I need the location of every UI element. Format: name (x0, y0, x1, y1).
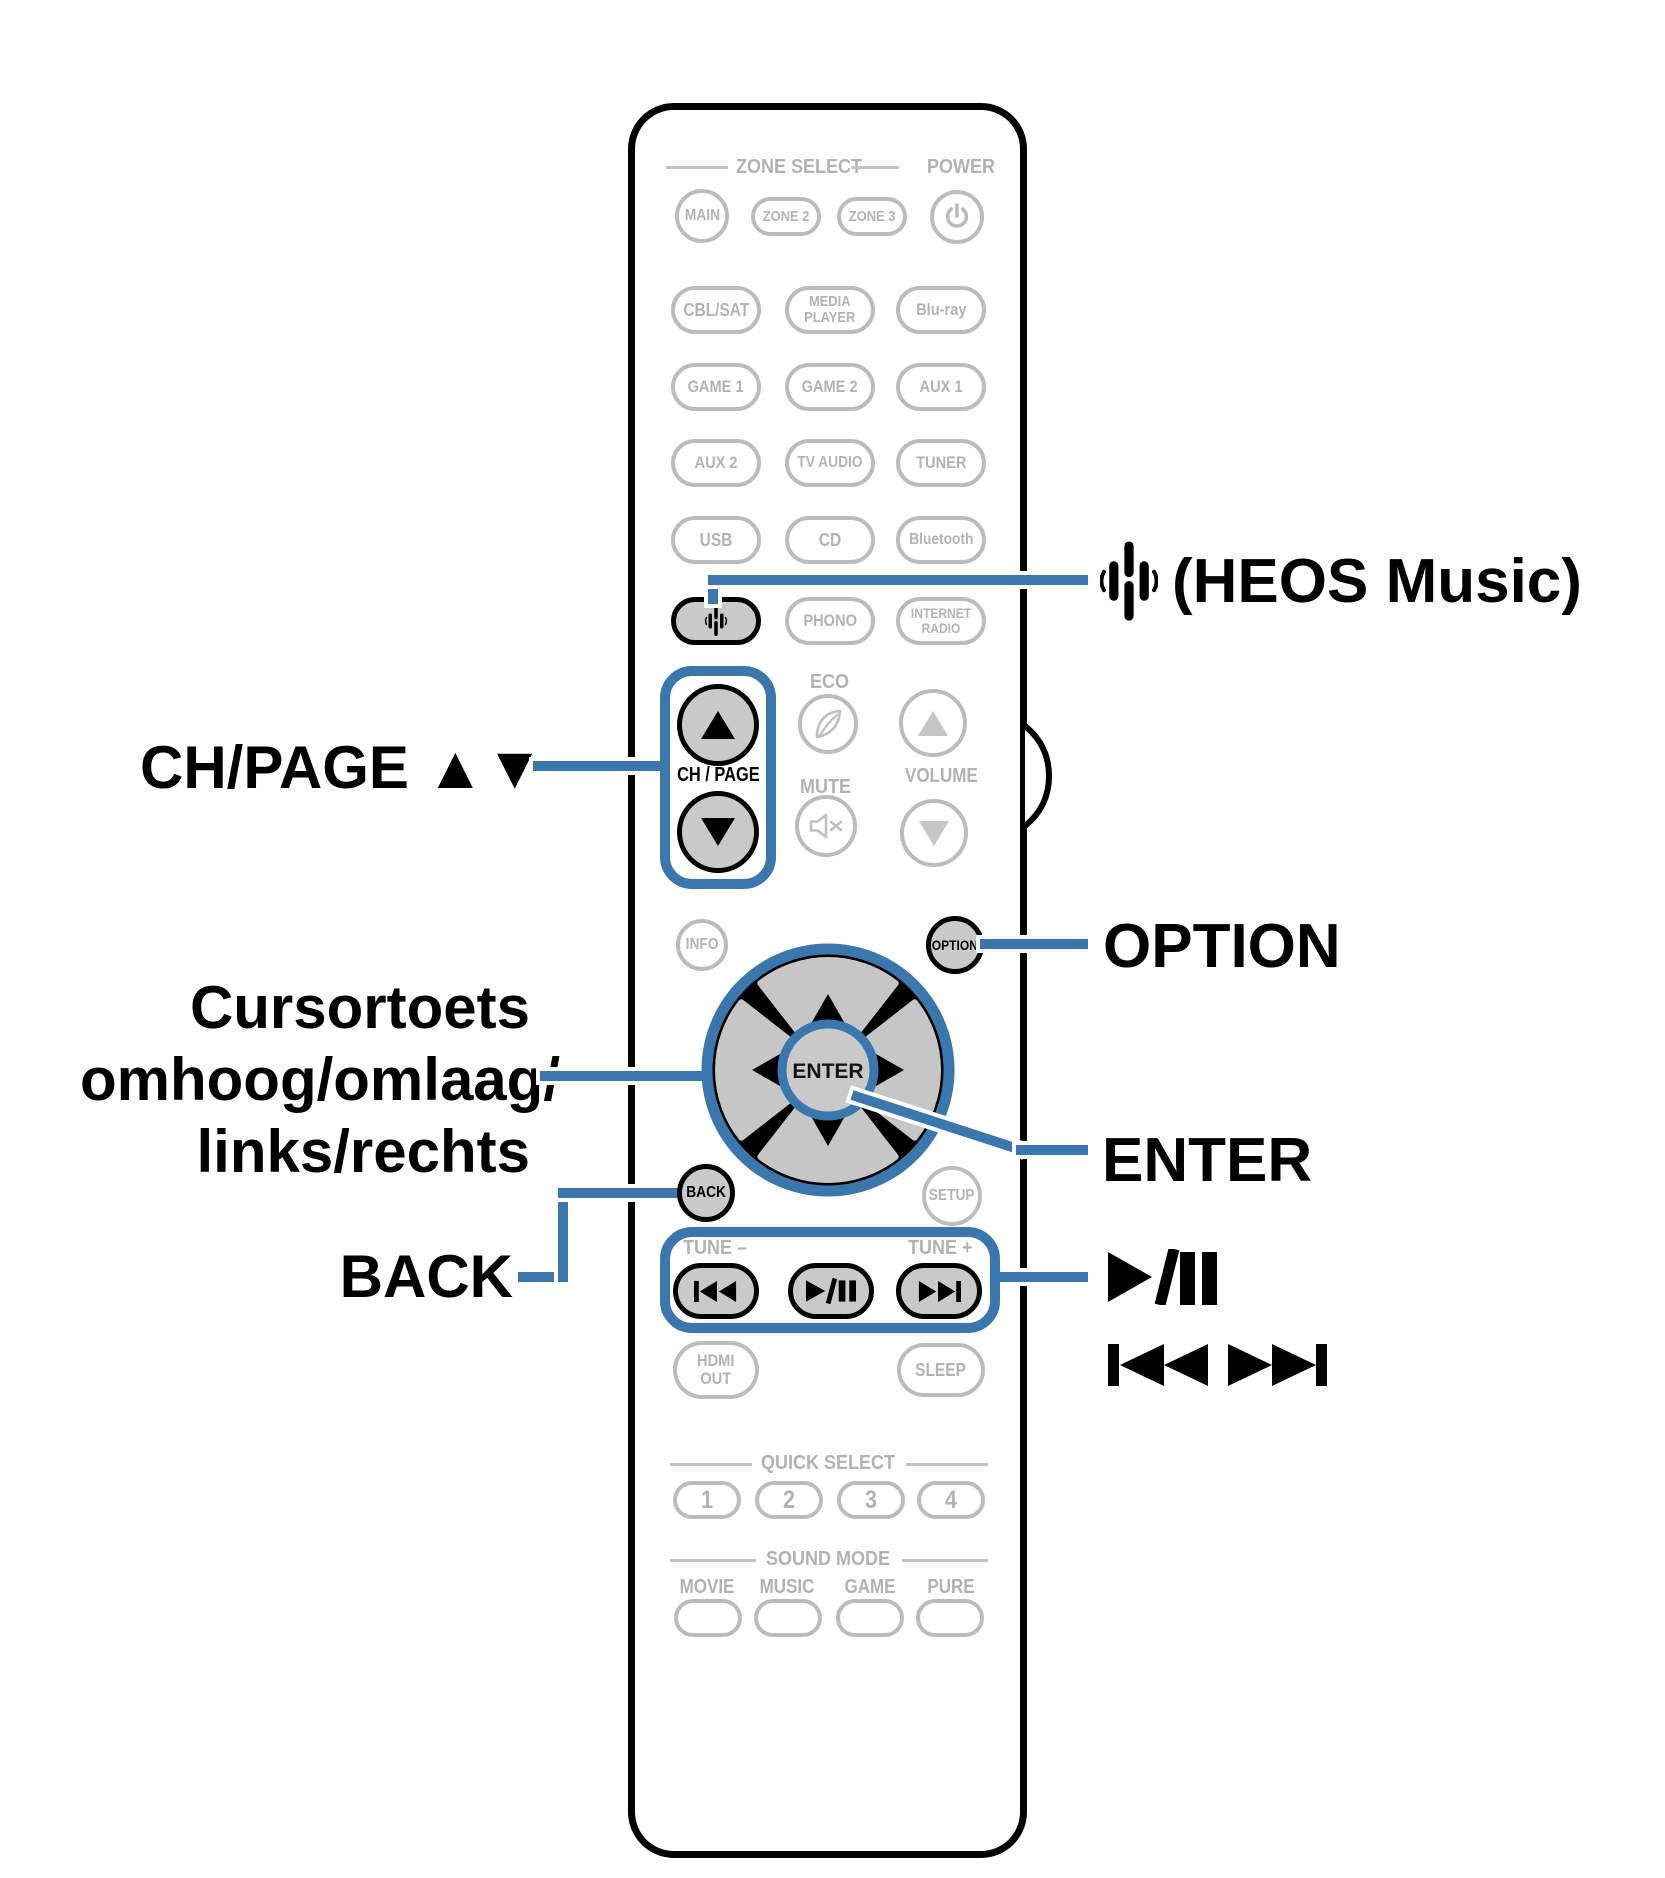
cursor-callout-label: Cursortoets omhoog/omlaag/ links/rechts (80, 972, 530, 1188)
game1-button[interactable]: GAME 1 (671, 363, 761, 411)
cbl-sat-button[interactable]: CBL/SAT (671, 286, 761, 334)
cursor-label-line2: omhoog/omlaag/ (80, 1044, 530, 1116)
quick-select-header: QUICK SELECT (761, 1452, 895, 1475)
heos-icon (695, 606, 737, 636)
hdmi-out-button[interactable]: HDMIOUT (673, 1341, 759, 1399)
zone-select-dash-right (851, 166, 899, 169)
game-label: GAME (845, 1576, 896, 1599)
pure-label: PURE (927, 1576, 974, 1599)
sound-mode-dash-right (902, 1559, 988, 1562)
ch-page-highlight-box (660, 666, 776, 889)
quick-select-2-button[interactable]: 2 (755, 1481, 823, 1519)
manual-diagram-page: ZONE SELECT POWER MAIN ZONE 2 ZONE 3 CBL… (0, 0, 1665, 1878)
phono-button[interactable]: PHONO (785, 597, 875, 645)
internet-radio-button[interactable]: INTERNETRADIO (896, 597, 986, 645)
cd-button[interactable]: CD (785, 516, 875, 564)
sound-mode-dash-left (670, 1559, 756, 1562)
cursor-label-line3: links/rechts (80, 1116, 530, 1188)
sound-mode-game-button[interactable] (836, 1599, 904, 1637)
enter-callout-line (1016, 1145, 1088, 1155)
cursor-pad: ENTER (696, 938, 960, 1202)
bluetooth-button[interactable]: Bluetooth (896, 516, 986, 564)
back-button[interactable]: BACK (677, 1164, 735, 1222)
play-pause-callout-label (1108, 1249, 1218, 1305)
cursor-callout-line (540, 1071, 706, 1081)
remote-side-bump (1021, 722, 1055, 830)
ch-page-callout-label: CH/PAGE ▲▼ (140, 733, 518, 802)
volume-down-button[interactable] (900, 799, 968, 867)
volume-up-triangle-icon (918, 711, 948, 736)
quick-select-dash-right (906, 1463, 988, 1466)
heos-music-label-text: (HEOS Music) (1172, 546, 1582, 617)
volume-down-triangle-icon (919, 821, 949, 846)
heos-music-button[interactable] (671, 597, 761, 645)
zone-select-header: ZONE SELECT (736, 156, 862, 179)
zone3-button[interactable]: ZONE 3 (837, 197, 907, 236)
heos-music-callout-label: (HEOS Music) (1100, 540, 1582, 622)
bluray-button[interactable]: Blu-ray (896, 286, 986, 334)
quick-select-dash-left (670, 1463, 752, 1466)
quick-select-1-button[interactable]: 1 (673, 1481, 741, 1519)
heos-callout-line (708, 575, 1088, 585)
option-callout-line (980, 939, 1088, 949)
transport-highlight-box (660, 1227, 1000, 1333)
enter-button-label: ENTER (792, 1060, 863, 1083)
back-callout-label: BACK (280, 1242, 513, 1311)
sound-mode-movie-button[interactable] (674, 1599, 742, 1637)
sound-mode-pure-button[interactable] (916, 1599, 984, 1637)
music-label: MUSIC (760, 1576, 815, 1599)
play-pause-callout-line (995, 1272, 1088, 1282)
power-button[interactable] (930, 190, 984, 244)
cursor-label-line1: Cursortoets (80, 972, 530, 1044)
eco-leaf-icon (813, 708, 843, 740)
ch-page-callout-line (533, 761, 665, 771)
main-zone-button[interactable]: MAIN (675, 189, 729, 243)
back-callout-line-to-button (558, 1188, 682, 1198)
eco-button[interactable] (798, 694, 858, 754)
sleep-button[interactable]: SLEEP (897, 1343, 985, 1397)
mute-icon (809, 813, 843, 839)
tv-audio-button[interactable]: TV AUDIO (785, 439, 875, 487)
aux2-button[interactable]: AUX 2 (671, 439, 761, 487)
power-icon (944, 203, 970, 231)
media-player-button[interactable]: MEDIAPLAYER (785, 286, 875, 334)
heos-icon (1100, 540, 1158, 622)
back-callout-line-vertical (558, 1188, 568, 1282)
usb-button[interactable]: USB (671, 516, 761, 564)
option-callout-label: OPTION (1103, 911, 1341, 982)
sound-mode-header: SOUND MODE (766, 1548, 890, 1571)
quick-select-3-button[interactable]: 3 (837, 1481, 905, 1519)
tuner-button[interactable]: TUNER (896, 439, 986, 487)
skip-back-forward-callout-label (1108, 1342, 1328, 1388)
zone2-button[interactable]: ZONE 2 (751, 197, 821, 236)
enter-callout-label: ENTER (1102, 1125, 1312, 1196)
zone-select-dash-left (666, 166, 728, 169)
mute-button[interactable] (795, 795, 857, 857)
volume-up-button[interactable] (899, 689, 967, 757)
aux1-button[interactable]: AUX 1 (896, 363, 986, 411)
sound-mode-music-button[interactable] (754, 1599, 822, 1637)
movie-label: MOVIE (680, 1576, 735, 1599)
power-header: POWER (927, 156, 995, 179)
quick-select-4-button[interactable]: 4 (917, 1481, 985, 1519)
eco-header: ECO (810, 671, 849, 694)
volume-header: VOLUME (905, 765, 978, 788)
game2-button[interactable]: GAME 2 (785, 363, 875, 411)
